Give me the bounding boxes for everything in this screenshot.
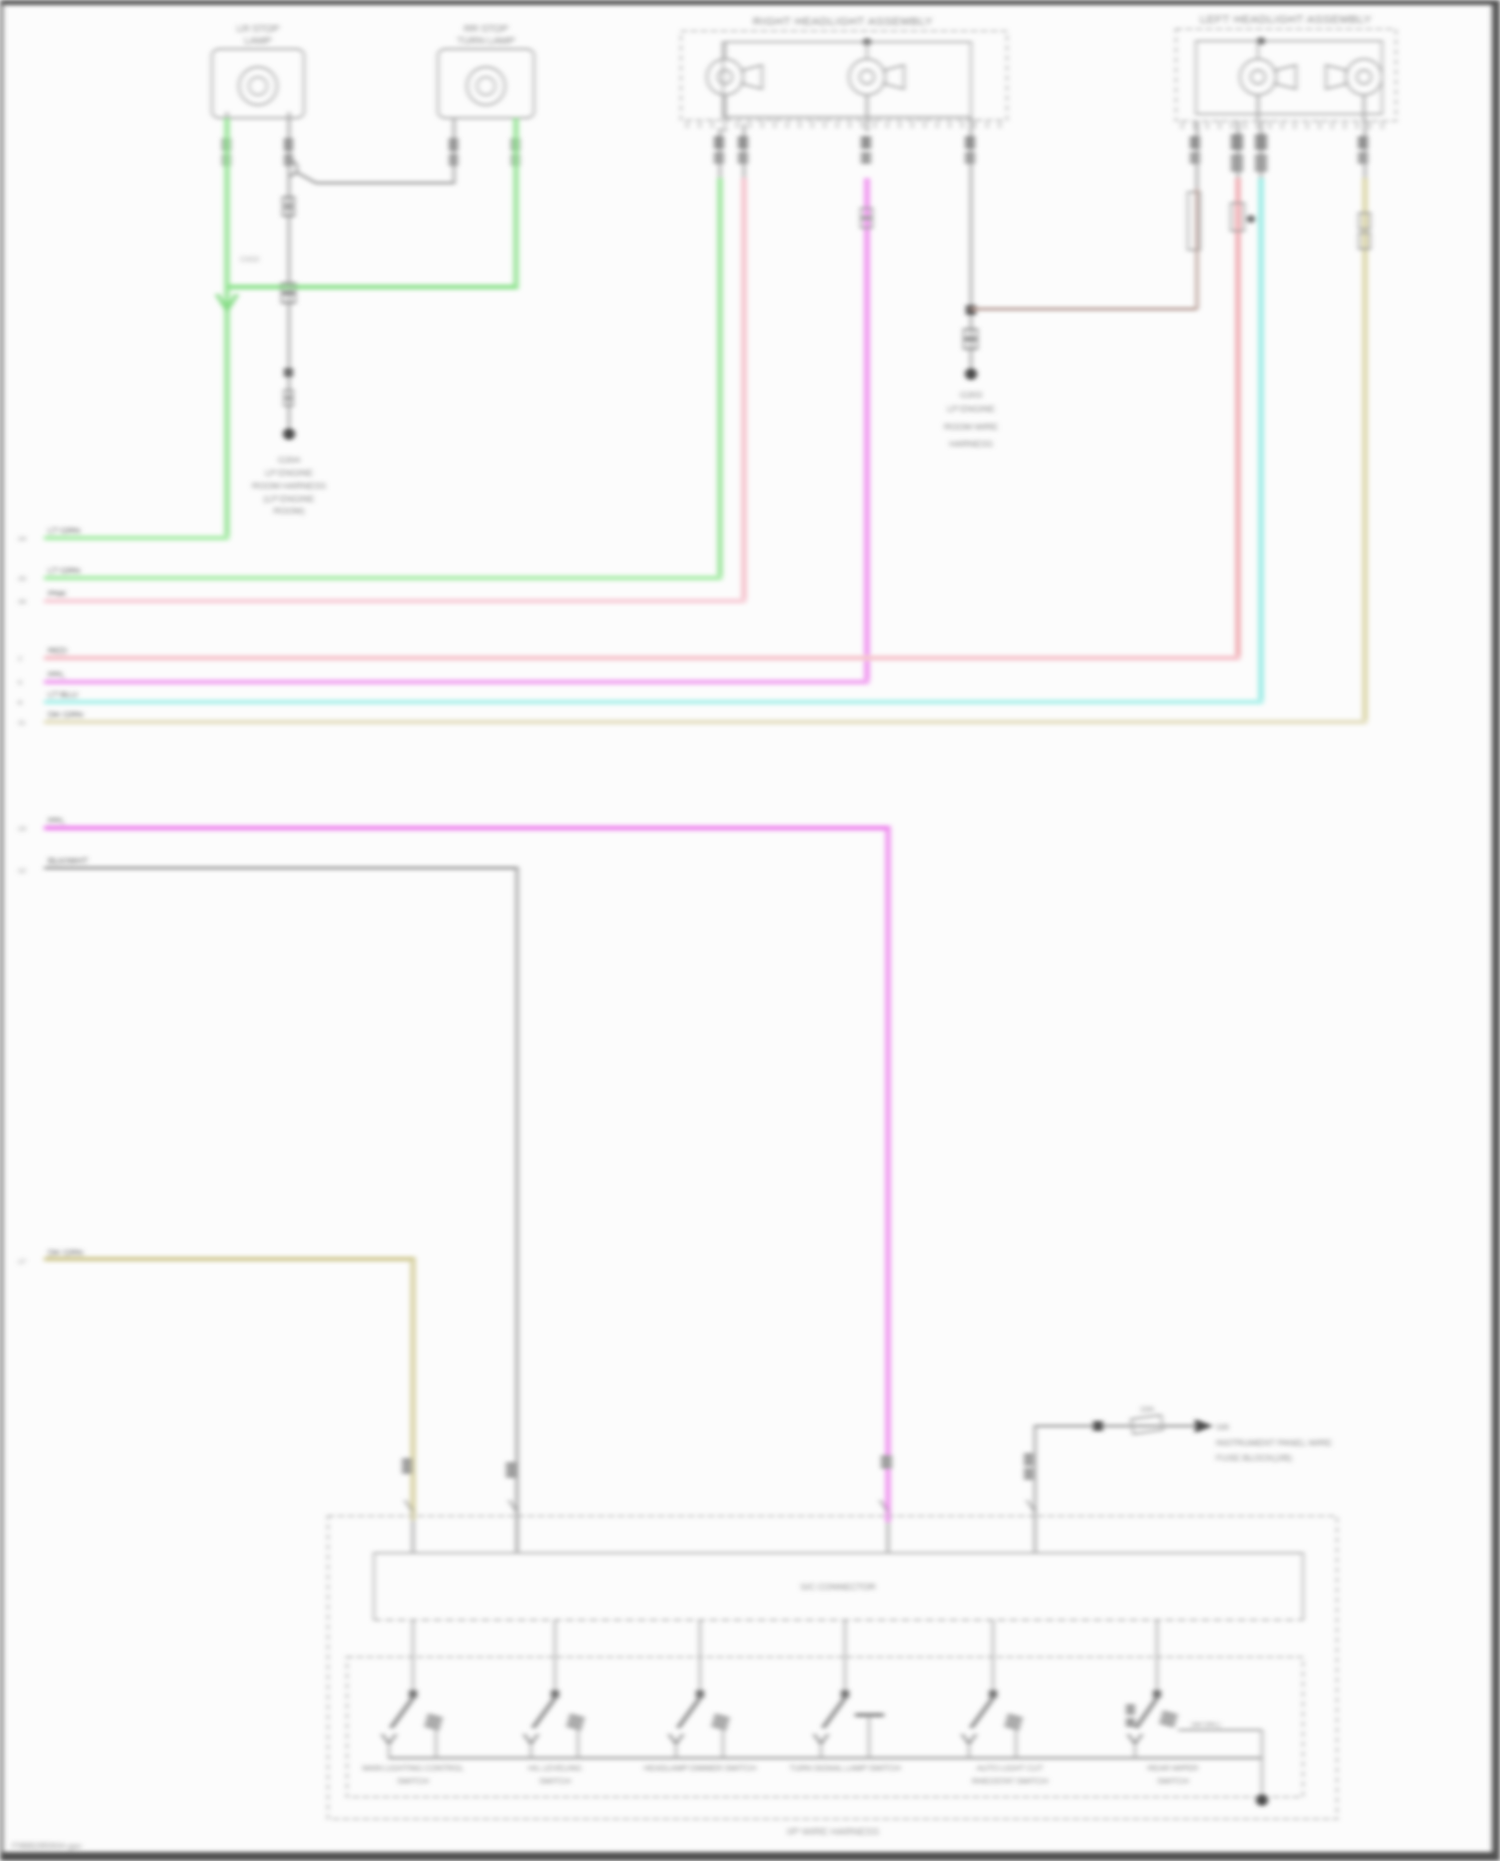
svg-text:SWITCH: SWITCH (397, 1777, 429, 1786)
svg-text:G304: G304 (278, 455, 300, 465)
svg-text:RIGHT HEADLIGHT ASSEMBLY: RIGHT HEADLIGHT ASSEMBLY (753, 16, 933, 28)
svg-text:17: 17 (18, 1259, 26, 1266)
svg-text:TURN LAMP: TURN LAMP (457, 36, 515, 47)
svg-text:13: 13 (18, 826, 26, 833)
svg-text:I/P WIRE HARNESS: I/P WIRE HARNESS (787, 1827, 879, 1838)
svg-text:S/C CONNECTOR: S/C CONNECTOR (800, 1582, 876, 1592)
svg-text:PPL: PPL (48, 670, 65, 680)
svg-text:LT GRN: LT GRN (48, 526, 80, 536)
svg-text:LR STOP: LR STOP (237, 24, 280, 35)
svg-text:C410: C410 (240, 255, 260, 264)
svg-text:RHEOSTAT SWITCH: RHEOSTAT SWITCH (972, 1777, 1048, 1786)
svg-text:HEADLAMP DIMMER SWITCH: HEADLAMP DIMMER SWITCH (644, 1764, 757, 1773)
svg-text:F9BB28590A gpc: F9BB28590A gpc (12, 1841, 83, 1851)
svg-text:16: 16 (18, 599, 26, 606)
svg-text:H/L LEVELING: H/L LEVELING (528, 1764, 582, 1773)
svg-text:DK GRN: DK GRN (48, 710, 83, 720)
svg-text:14: 14 (18, 536, 26, 543)
svg-text:RR STOP: RR STOP (464, 24, 509, 35)
svg-text:LP ENGINE: LP ENGINE (265, 468, 313, 478)
svg-text:2: 2 (18, 656, 22, 663)
svg-text:SWITCH: SWITCH (539, 1777, 571, 1786)
svg-text:11: 11 (18, 720, 25, 727)
svg-text:LEFT HEADLIGHT ASSEMBLY: LEFT HEADLIGHT ASSEMBLY (1200, 14, 1372, 26)
svg-text:FUSE BLOCK(J/B): FUSE BLOCK(J/B) (1216, 1453, 1292, 1463)
svg-text:5: 5 (18, 680, 22, 687)
svg-text:ROOM WIRE: ROOM WIRE (944, 422, 998, 432)
svg-text:RED: RED (48, 646, 68, 656)
svg-text:(W/ DRL): (W/ DRL) (1191, 1722, 1220, 1729)
svg-text:MAIN LIGHTING CONTROL: MAIN LIGHTING CONTROL (362, 1764, 464, 1773)
svg-text:TURN SIGNAL LAMP SWITCH: TURN SIGNAL LAMP SWITCH (789, 1764, 900, 1773)
svg-text:HARNESS: HARNESS (949, 439, 993, 449)
svg-text:8: 8 (18, 700, 22, 707)
svg-text:G303: G303 (960, 390, 982, 400)
svg-text:10A: 10A (1140, 1405, 1155, 1414)
svg-text:LP ENGINE: LP ENGINE (947, 404, 995, 414)
svg-text:LT GRN: LT GRN (48, 566, 80, 576)
svg-text:INSTRUMENT PANEL WIRE: INSTRUMENT PANEL WIRE (1216, 1438, 1332, 1448)
svg-text:BLK/WHT: BLK/WHT (48, 856, 89, 866)
svg-text:AUTO LIGHT CUT: AUTO LIGHT CUT (977, 1764, 1043, 1773)
svg-text:PPL: PPL (48, 816, 65, 826)
svg-text:LAMP: LAMP (244, 36, 272, 47)
svg-text:REAR WIPER: REAR WIPER (1148, 1764, 1199, 1773)
svg-text:(LP ENGINE: (LP ENGINE (264, 494, 315, 504)
svg-text:15: 15 (18, 576, 26, 583)
svg-text:S/B: S/B (1216, 1423, 1229, 1432)
svg-text:12: 12 (18, 868, 26, 875)
svg-text:SWITCH: SWITCH (1157, 1777, 1189, 1786)
svg-text:LT BLU: LT BLU (48, 690, 78, 700)
svg-text:ROOM): ROOM) (274, 506, 305, 516)
svg-text:ROOM HARNESS: ROOM HARNESS (252, 481, 326, 491)
svg-text:PNK: PNK (48, 589, 67, 599)
